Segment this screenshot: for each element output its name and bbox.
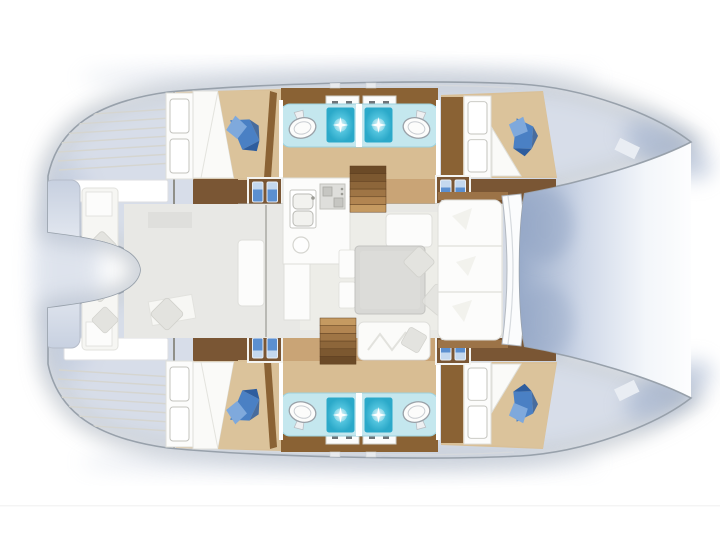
- catamaran-floorplan: [0, 0, 720, 540]
- galley-cabinet: [284, 264, 310, 320]
- seat-cushion: [339, 282, 355, 308]
- seat-cushion: [386, 214, 432, 247]
- bench-cushion: [86, 192, 112, 216]
- companionway-stairs-port: [350, 166, 386, 212]
- companionway-stairs-starboard: [320, 318, 356, 364]
- cockpit-seat: [238, 240, 264, 306]
- page-artifact-line: [0, 505, 720, 507]
- round-fixture: [293, 237, 309, 253]
- floorplan-stage: Catamaran yacht interior layout — top-do…: [0, 0, 720, 540]
- forward-settee: [438, 192, 508, 348]
- cockpit-step: [148, 212, 192, 228]
- seat-cushion: [339, 250, 355, 278]
